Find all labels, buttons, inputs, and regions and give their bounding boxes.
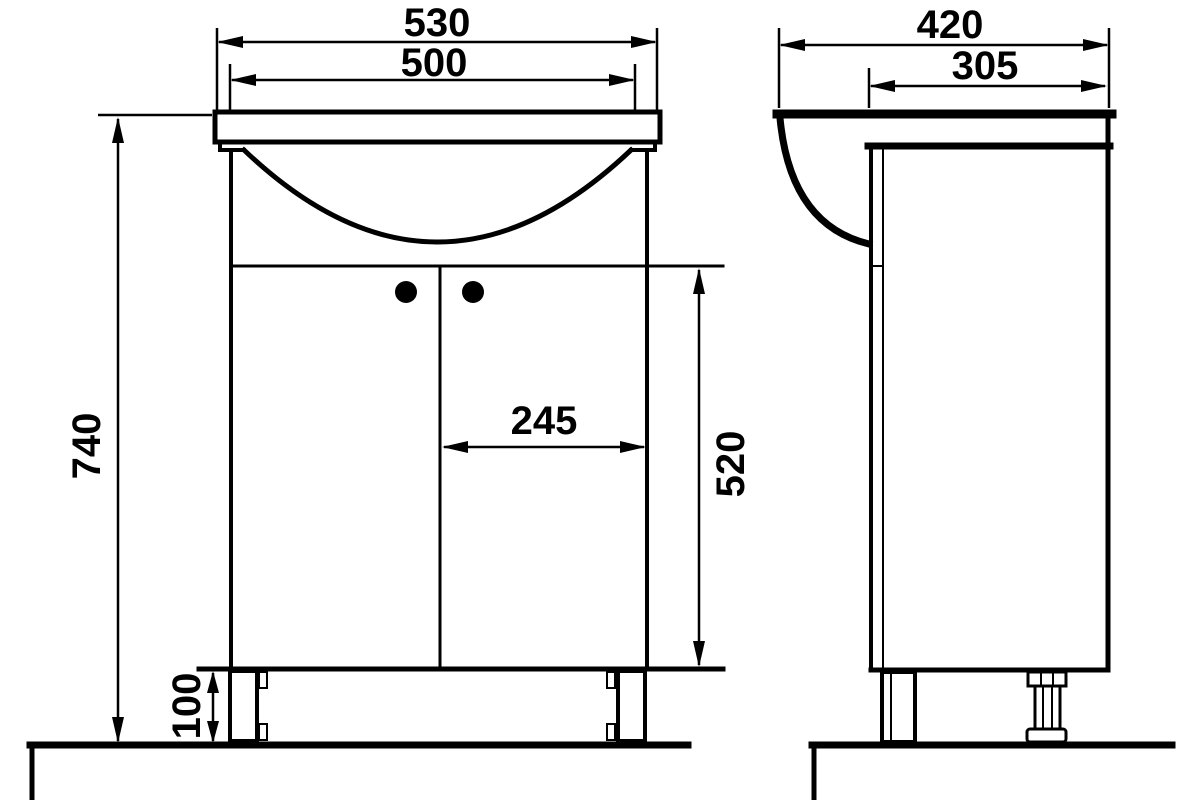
- vanity-dimension-drawing: 530 500 740 245: [0, 0, 1200, 800]
- right-leg-bottom-bracket: [607, 724, 615, 740]
- dim-label-door-height: 520: [709, 431, 753, 498]
- arrowhead-right: [631, 36, 657, 48]
- right-door-knob: [462, 281, 484, 303]
- side-basin-curve: [780, 118, 869, 244]
- arrowhead-right: [1083, 39, 1109, 51]
- arrowhead-left: [869, 80, 895, 92]
- dim-label-overall-width: 530: [404, 1, 471, 45]
- arrowhead-left: [217, 36, 243, 48]
- arrowhead-left: [779, 39, 805, 51]
- basin-curve: [244, 150, 631, 242]
- foot-shaft: [1035, 686, 1060, 729]
- front-view: 530 500 740 245: [30, 1, 753, 800]
- rear-adjustable-foot: [1027, 672, 1066, 742]
- dimension-door-height: 520: [693, 268, 753, 667]
- arrowhead-right: [1081, 80, 1107, 92]
- left-leg-bottom-bracket: [259, 724, 267, 740]
- dimension-overall-depth: 420: [779, 3, 1109, 108]
- arrowhead-left: [442, 441, 468, 453]
- side-view: 420 305: [777, 3, 1172, 800]
- dimension-plinth-height: 100: [165, 671, 219, 743]
- dim-label-plinth-height: 100: [165, 673, 209, 740]
- side-front-leg: [882, 672, 915, 742]
- front-right-leg: [618, 671, 645, 741]
- dimension-cabinet-depth: 305: [869, 44, 1107, 108]
- dimension-door-width: 245: [442, 399, 646, 453]
- foot-pad: [1027, 729, 1066, 742]
- right-leg-top-bracket: [607, 672, 615, 688]
- left-door-knob: [395, 281, 417, 303]
- arrowhead-left: [230, 74, 256, 86]
- arrowhead-down: [112, 717, 124, 743]
- arrowhead-right: [609, 74, 635, 86]
- dimension-basin-width: 500: [230, 41, 635, 112]
- foot-flange: [1028, 672, 1066, 686]
- front-countertop: [215, 112, 660, 142]
- dim-label-cabinet-depth: 305: [952, 44, 1019, 88]
- left-leg-top-bracket: [259, 672, 267, 688]
- dim-label-basin-width: 500: [401, 41, 468, 85]
- dim-label-door-width: 245: [511, 399, 578, 443]
- front-left-leg: [230, 671, 257, 741]
- arrowhead-right: [620, 441, 646, 453]
- dim-label-overall-depth: 420: [917, 3, 984, 47]
- arrowhead-up: [693, 268, 705, 294]
- arrowhead-down: [693, 641, 705, 667]
- arrowhead-up: [112, 117, 124, 143]
- dim-label-overall-height: 740: [65, 413, 109, 480]
- dimension-overall-height: 740: [65, 115, 212, 743]
